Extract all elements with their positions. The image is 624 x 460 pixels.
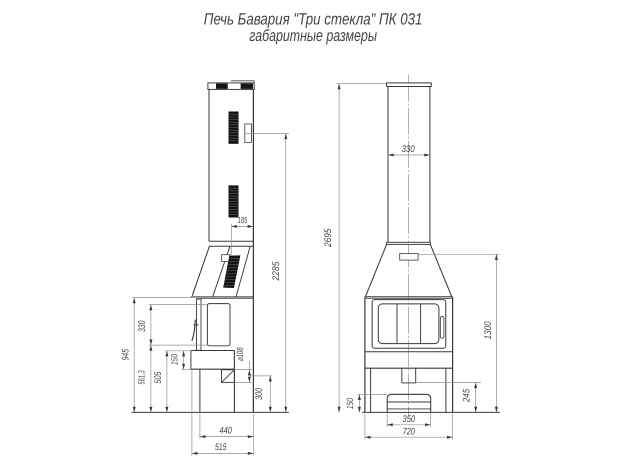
- svg-text:2695: 2695: [323, 228, 334, 248]
- svg-text:185: 185: [238, 215, 248, 225]
- svg-text:720: 720: [403, 426, 416, 437]
- svg-text:⌀108: ⌀108: [235, 347, 245, 361]
- svg-text:300: 300: [254, 387, 265, 399]
- svg-text:245: 245: [462, 388, 473, 403]
- svg-text:1300: 1300: [483, 321, 494, 340]
- svg-text:150: 150: [345, 398, 355, 409]
- svg-text:330: 330: [137, 320, 148, 332]
- svg-text:350: 350: [403, 414, 416, 425]
- svg-text:габаритные размеры: габаритные размеры: [249, 27, 377, 45]
- svg-text:150: 150: [169, 354, 179, 365]
- svg-text:561,3: 561,3: [136, 370, 146, 384]
- svg-text:2285: 2285: [271, 261, 282, 281]
- svg-text:330: 330: [402, 144, 415, 155]
- svg-text:440: 440: [220, 425, 233, 436]
- svg-text:945: 945: [121, 349, 132, 361]
- svg-text:Печь Бавария "Три стекла" ПК 0: Печь Бавария "Три стекла" ПК 031: [204, 10, 423, 28]
- svg-text:505: 505: [153, 371, 164, 383]
- svg-text:515: 515: [215, 442, 227, 453]
